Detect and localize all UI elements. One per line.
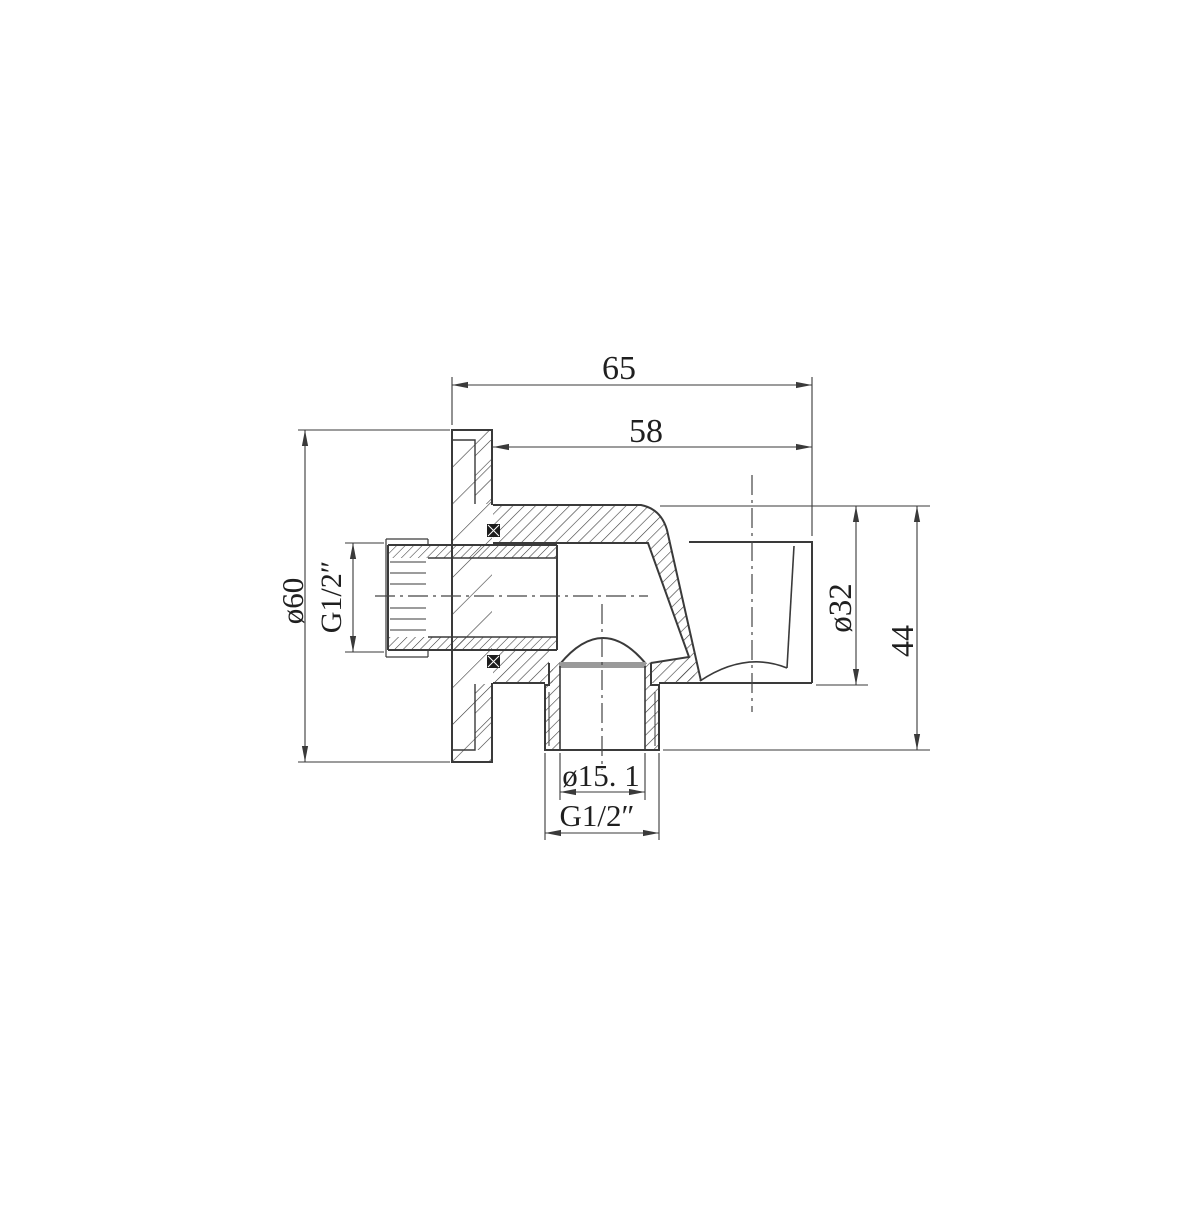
nipple-wall-bottom-hatch: [388, 637, 557, 650]
body-bottom-wall-hatch: [493, 650, 553, 683]
label-flange-diameter: ø60: [275, 578, 310, 625]
cup-inner-taper: [787, 546, 794, 668]
dimension-labels: 65 58 ø60 G1/2″ ø32 44 ø15. 1 G1/2″: [275, 350, 920, 833]
label-outlet-bore: ø15. 1: [562, 758, 640, 793]
nipple-bore: [428, 558, 557, 637]
flange-collar-bottom-hatch: [475, 684, 492, 750]
cup-bottom-arc: [700, 662, 787, 681]
flange-collar-top-hatch: [475, 440, 492, 504]
label-holder-diameter: ø32: [823, 583, 859, 633]
technical-drawing-page: 65 58 ø60 G1/2″ ø32 44 ø15. 1 G1/2″: [0, 0, 1200, 1200]
label-body-width: 58: [629, 413, 663, 450]
section-drawing: 65 58 ø60 G1/2″ ø32 44 ø15. 1 G1/2″: [0, 0, 1200, 1200]
nipple-wall-top-hatch: [388, 545, 557, 558]
body-top-wall-hatch: [493, 505, 671, 543]
label-inlet-thread: G1/2″: [315, 561, 348, 634]
label-outlet-thread: G1/2″: [560, 798, 635, 833]
holder-cup: [689, 542, 812, 683]
valve-body: [493, 505, 812, 683]
valve-dome-arc: [560, 638, 646, 664]
label-overall-width: 65: [602, 350, 636, 387]
label-overall-height: 44: [884, 625, 920, 657]
